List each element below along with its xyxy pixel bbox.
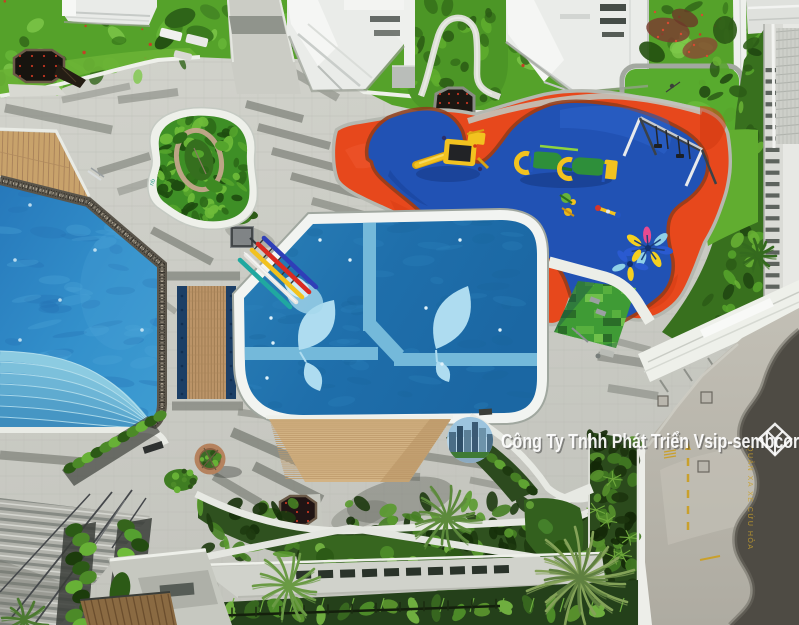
svg-text:Công Ty Tnhh Phát Triển Vsip-s: Công Ty Tnhh Phát Triển Vsip-sembcorp: [501, 430, 799, 453]
svg-text:QUẢN XA XE CỨU HỎA: QUẢN XA XE CỨU HỎA: [746, 446, 755, 551]
